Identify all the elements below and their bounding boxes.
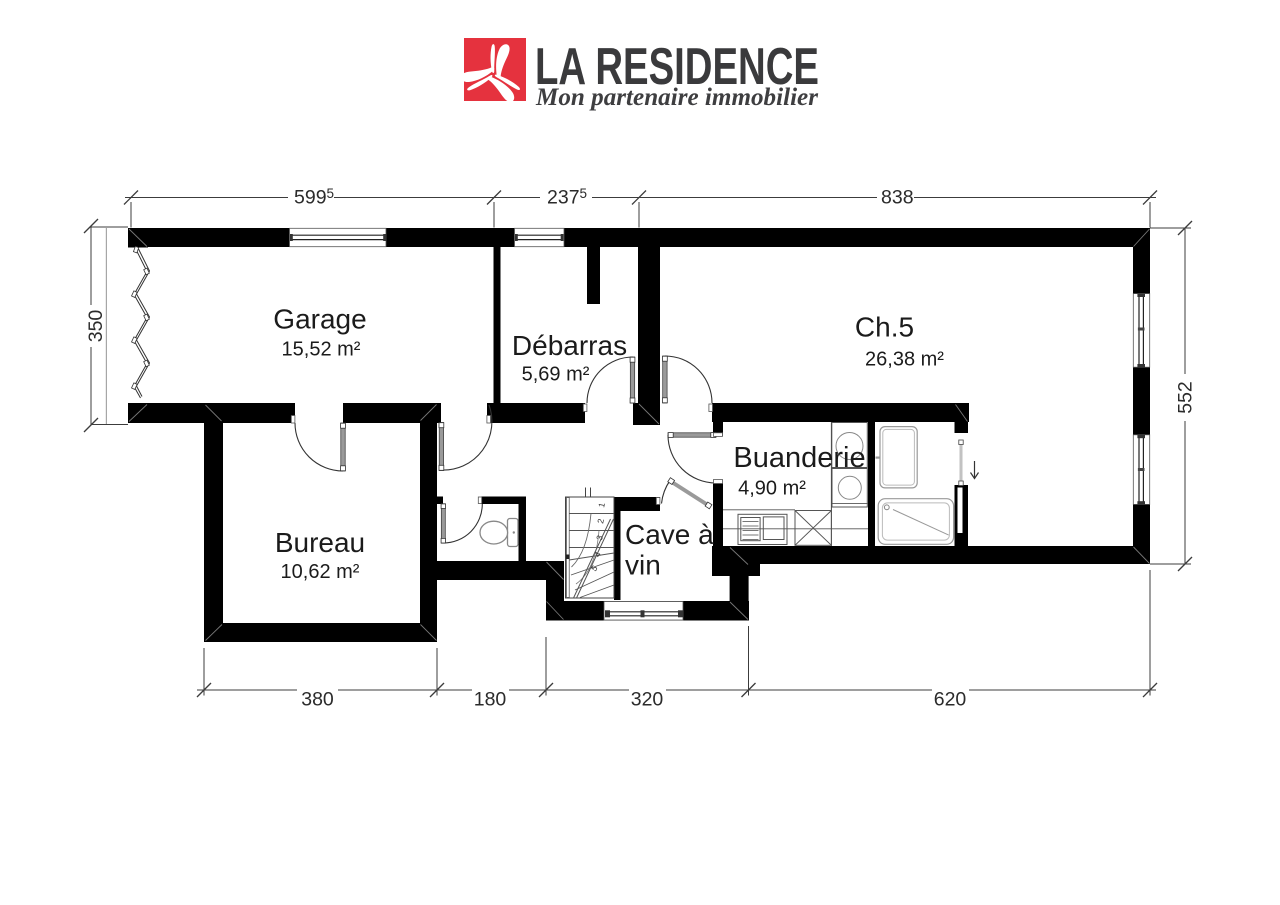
svg-text:Bureau: Bureau bbox=[275, 527, 365, 558]
svg-text:Mon partenaire immobilier: Mon partenaire immobilier bbox=[535, 84, 818, 111]
svg-text:10,62 m²: 10,62 m² bbox=[281, 561, 360, 583]
svg-text:838: 838 bbox=[881, 187, 914, 209]
svg-text:Débarras: Débarras bbox=[512, 330, 627, 361]
svg-text:Ch.5: Ch.5 bbox=[855, 312, 914, 343]
svg-text:vin: vin bbox=[625, 550, 661, 581]
svg-text:552: 552 bbox=[1175, 381, 1197, 414]
svg-text:26,38 m²: 26,38 m² bbox=[865, 349, 944, 371]
svg-text:15,52 m²: 15,52 m² bbox=[282, 339, 361, 361]
svg-text:Buanderie: Buanderie bbox=[733, 442, 865, 474]
svg-text:4,90 m²: 4,90 m² bbox=[738, 478, 806, 500]
svg-text:Cave à: Cave à bbox=[625, 519, 714, 550]
svg-text:Garage: Garage bbox=[273, 304, 366, 335]
svg-text:620: 620 bbox=[934, 689, 967, 711]
svg-text:380: 380 bbox=[301, 689, 334, 711]
svg-text:180: 180 bbox=[474, 689, 507, 711]
svg-text:350: 350 bbox=[85, 310, 107, 343]
svg-text:5,69 m²: 5,69 m² bbox=[522, 364, 590, 386]
svg-text:320: 320 bbox=[631, 689, 664, 711]
